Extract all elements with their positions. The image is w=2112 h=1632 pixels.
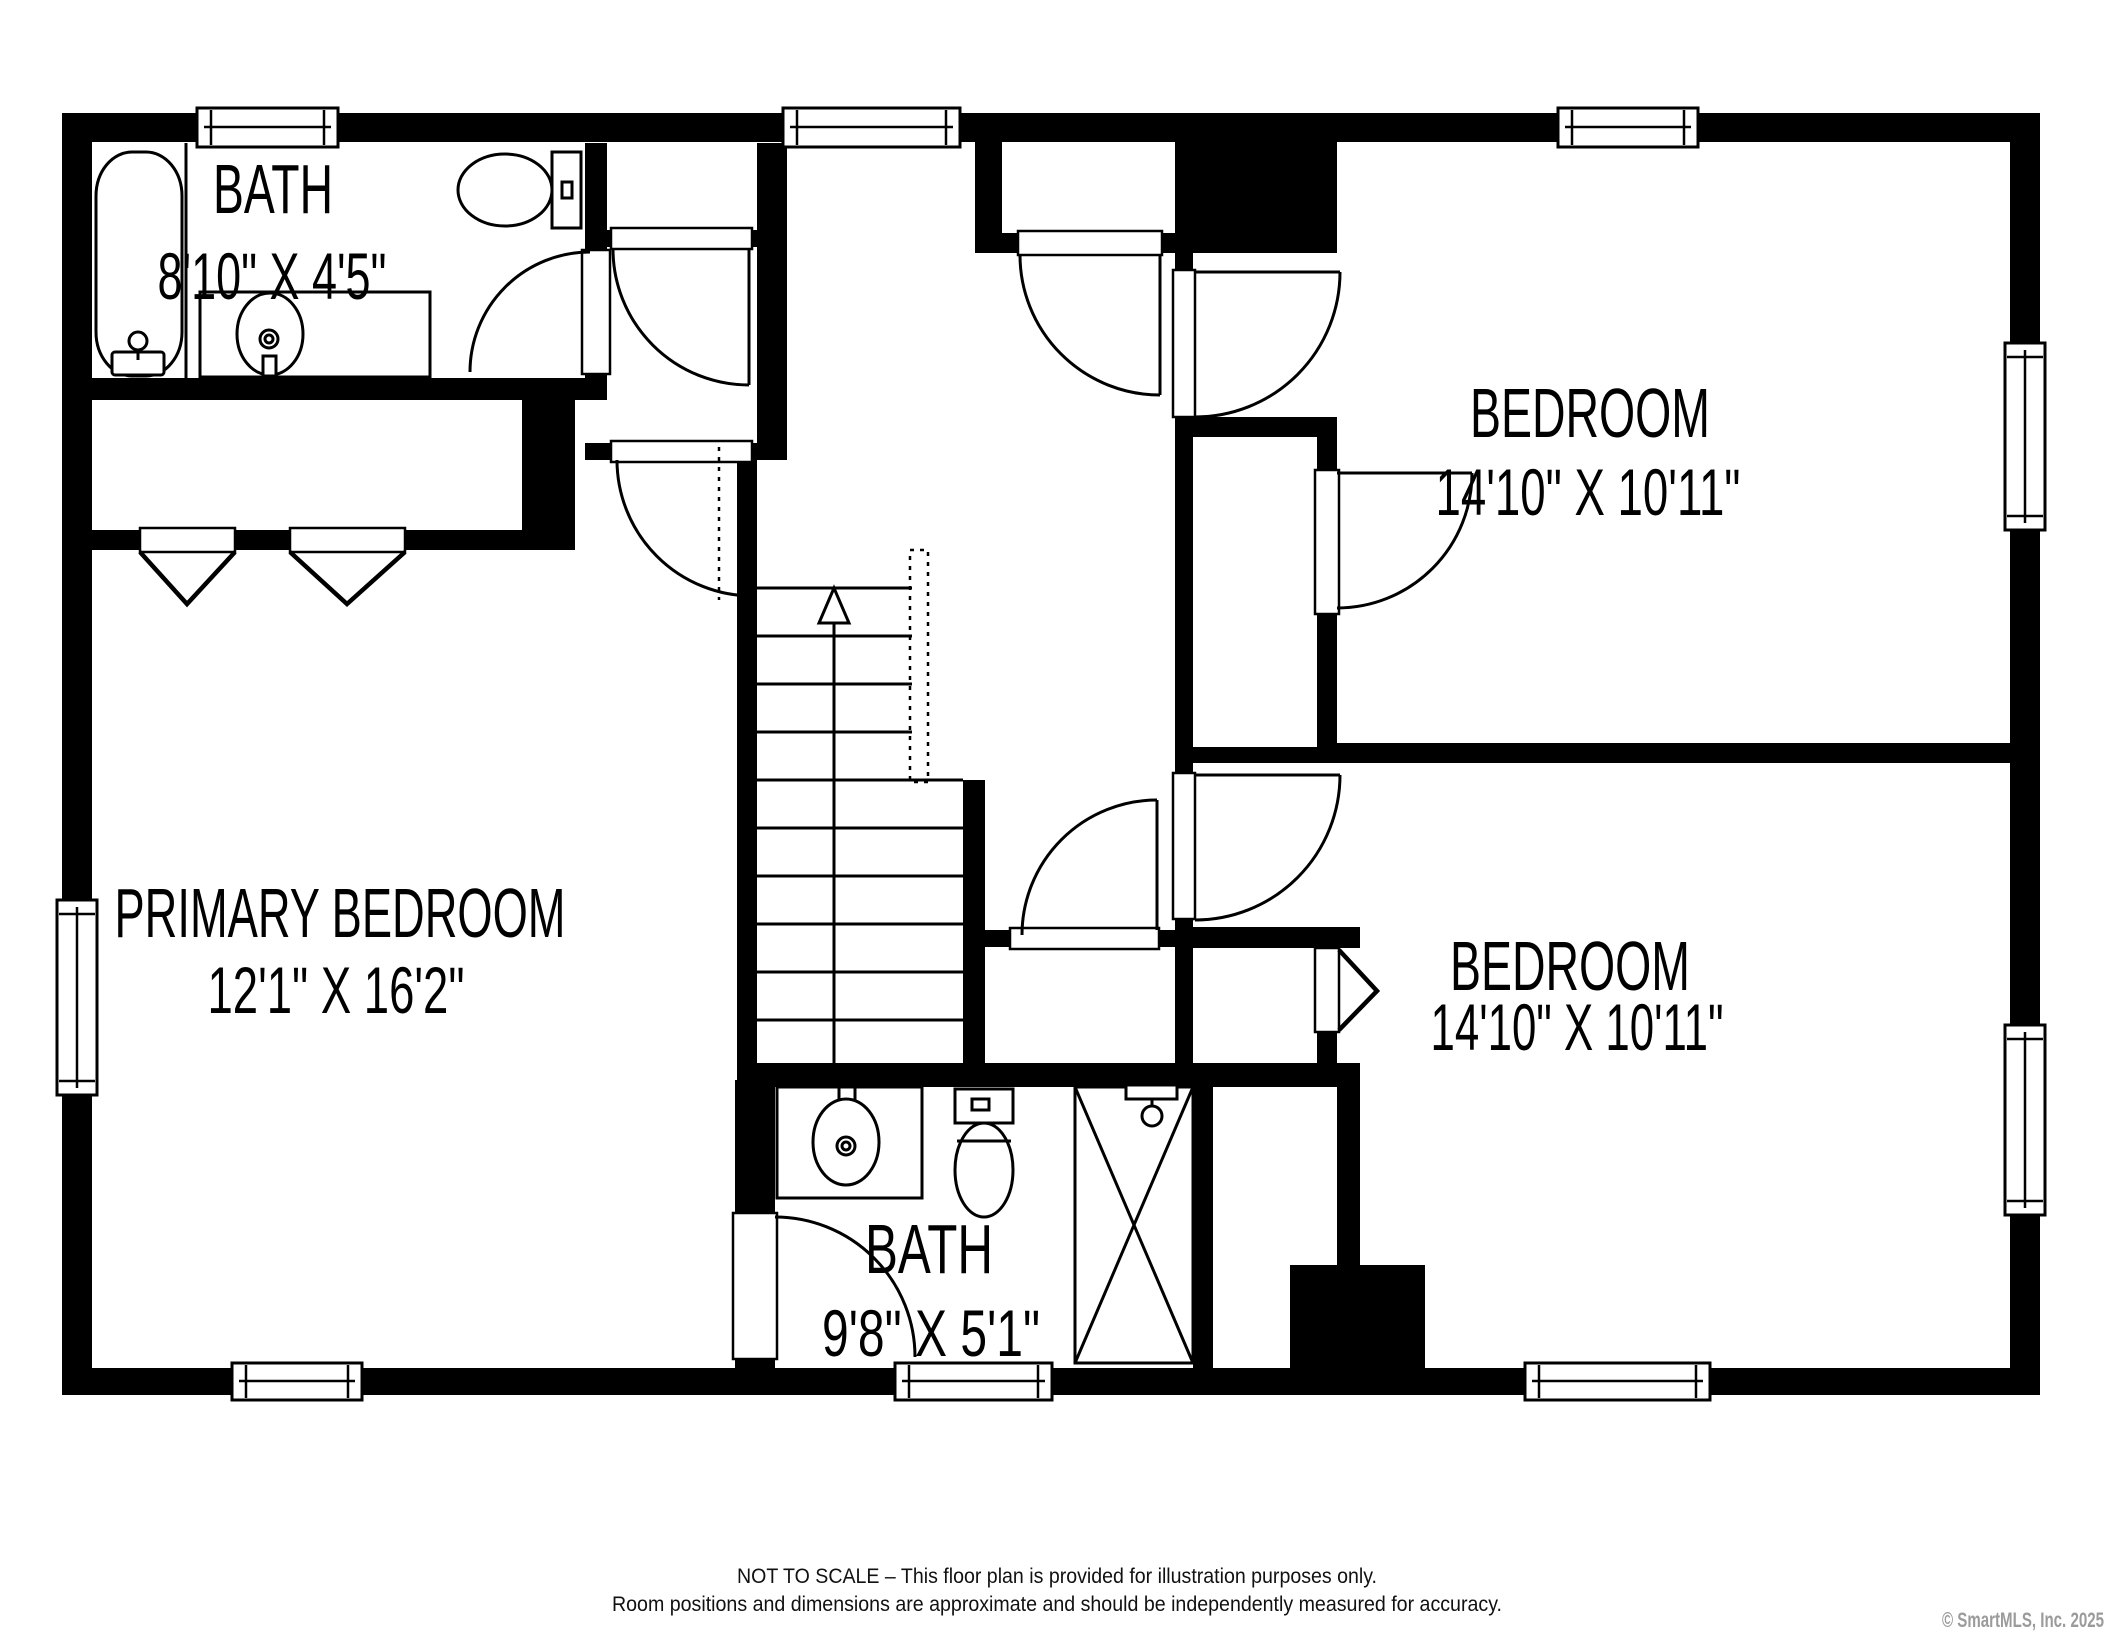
floor-plan-page: BATH 8'10" X 4'5" BEDROOM 14'10" X 10'11…	[0, 0, 2112, 1632]
opening-primary-door	[611, 441, 752, 462]
footer: NOT TO SCALE – This floor plan is provid…	[612, 1565, 2104, 1632]
label-primary-dims: 12'1" X 16'2"	[208, 953, 465, 1027]
label-bath-top-name: BATH	[213, 150, 333, 228]
label-bath-top-dims: 8'10" X 4'5"	[158, 239, 387, 313]
chase-block	[1290, 1265, 1425, 1368]
wall-hall-closet2-west	[975, 113, 1002, 253]
floor-plan-drawing: BATH 8'10" X 4'5" BEDROOM 14'10" X 10'11…	[0, 0, 2112, 1632]
window-primary-left	[57, 900, 97, 1095]
opening-linen-door	[1010, 928, 1159, 949]
label-bath-bottom-name: BATH	[865, 1210, 993, 1288]
label-bedroom-top-dims: 14'10" X 10'11"	[1436, 455, 1741, 529]
door-linen-closet	[1022, 800, 1157, 935]
stair-railing-dotted	[910, 550, 928, 782]
disclaimer-line-1: NOT TO SCALE – This floor plan is provid…	[737, 1565, 1377, 1588]
wall-outer-top	[62, 113, 2040, 142]
wall-chase-east	[1337, 1063, 1360, 1265]
window-bath-top	[197, 108, 338, 147]
fixtures	[96, 143, 1193, 1363]
wall-vestibule-east	[757, 143, 787, 460]
label-bedroom-bottom-dims: 14'10" X 10'11"	[1431, 990, 1724, 1064]
disclaimer-line-2: Room positions and dimensions are approx…	[612, 1593, 1502, 1616]
door-primary-bedroom	[617, 460, 753, 596]
opening-primary-closet-bifold-2	[290, 528, 405, 552]
wall-outer-left	[62, 113, 92, 1395]
window-bedroom-bottom	[1525, 1363, 1710, 1400]
toilet-icon-bath-bottom	[955, 1089, 1013, 1217]
opening-primary-closet-bifold-1	[140, 528, 235, 552]
door-closet2	[1020, 255, 1160, 395]
stair-treads	[757, 588, 963, 1020]
door-bedroom-bottom	[1195, 775, 1340, 920]
chimney-block	[1175, 113, 1337, 253]
opening-closet2-door	[1018, 231, 1162, 255]
bifold-door-primary-closet-1	[140, 552, 235, 604]
opening-bath-top-door	[582, 250, 610, 374]
wall-closetT-north	[1175, 417, 1337, 437]
wall-closetT-south	[1175, 747, 1337, 763]
door-closet1	[613, 249, 749, 385]
window-primary-bottom	[232, 1363, 362, 1400]
window-bedroom-top-right	[2005, 343, 2045, 530]
wall-stairs-east	[963, 780, 985, 1080]
wall-bath-bottom-north	[737, 1063, 1213, 1087]
opening-closet1-door	[611, 228, 752, 249]
opening-closetT-door	[1315, 470, 1339, 614]
bifold-door-closetB	[1339, 950, 1377, 1030]
opening-bath-bottom-door	[733, 1213, 777, 1359]
shower-icon	[1075, 1085, 1193, 1363]
wall-bath-bottom-east	[1193, 1063, 1213, 1368]
wall-below-bath-top	[92, 378, 607, 400]
bifold-door-primary-closet-2	[290, 552, 405, 604]
window-hall	[783, 108, 960, 147]
label-primary-name: PRIMARY BEDROOM	[115, 874, 566, 952]
door-arc-bath-top	[470, 252, 590, 372]
window-bedroom-bottom-right	[2005, 1025, 2045, 1215]
toilet-icon-bath-top	[458, 152, 581, 228]
door-bedroom-top	[1195, 272, 1340, 417]
copyright-notice: © SmartMLS, Inc. 2025	[1942, 1609, 2104, 1632]
wall-closet-pillar	[522, 400, 575, 550]
opening-bedroom-bottom-door	[1173, 773, 1195, 919]
label-bedroom-top-name: BEDROOM	[1470, 374, 1710, 452]
wall-bedrooms-divider	[1337, 743, 2010, 763]
sink-icon-bath-bottom	[777, 1087, 922, 1198]
window-bedroom-top	[1558, 108, 1698, 147]
opening-closetB-bifold	[1315, 948, 1339, 1032]
label-bath-bottom-dims: 9'8" X 5'1"	[822, 1296, 1040, 1370]
opening-bedroom-top-door	[1173, 270, 1195, 417]
stair-up-arrow	[819, 588, 849, 623]
